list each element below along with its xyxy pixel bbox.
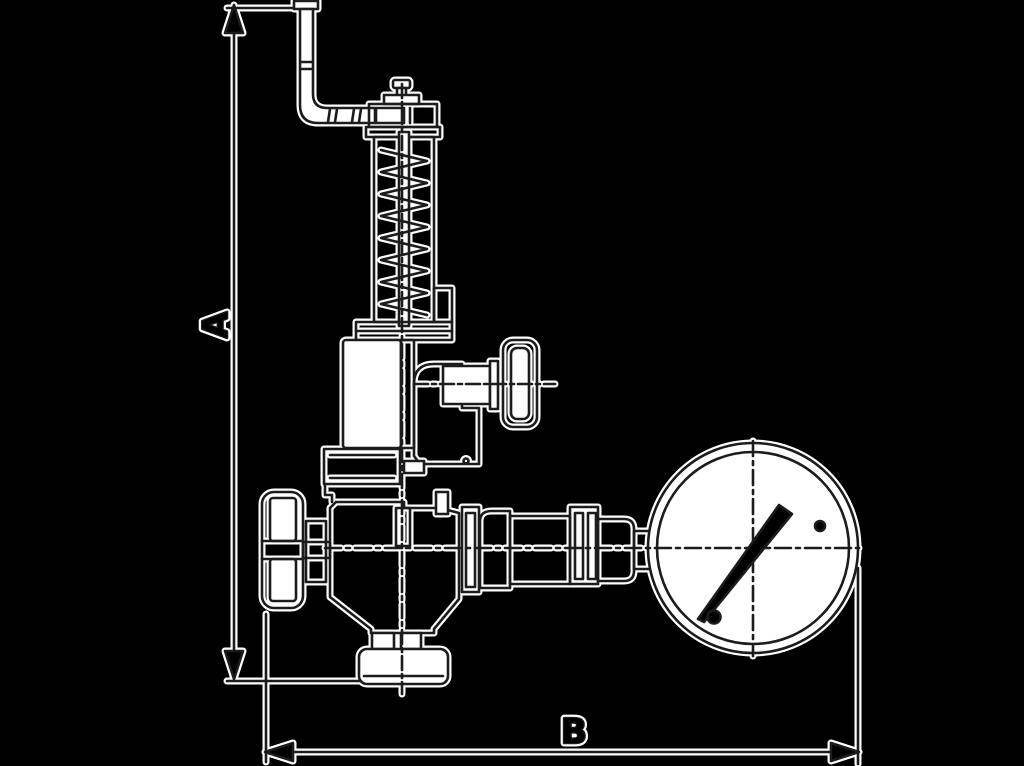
valve-diagram: A B: [0, 0, 1024, 766]
diagram-canvas: A B: [0, 0, 1024, 766]
ink-pass: [196, 1, 859, 764]
